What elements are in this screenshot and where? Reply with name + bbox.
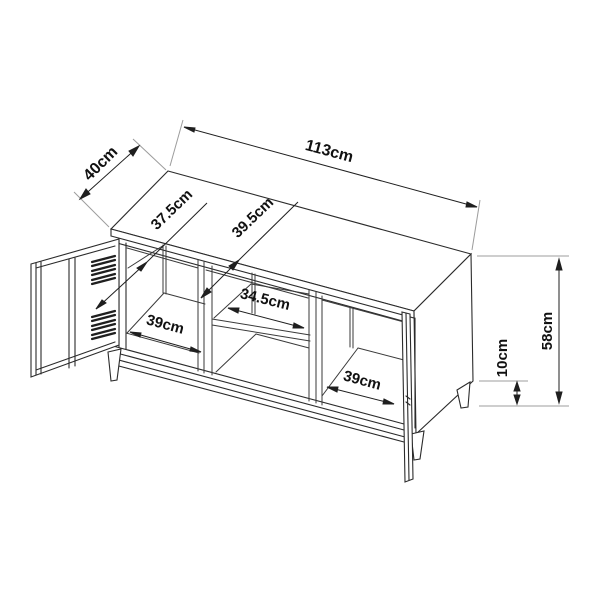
dimension-overall-height — [556, 259, 562, 403]
ext-40-back — [133, 139, 166, 170]
dimension-shelf-width — [228, 308, 304, 328]
arrowhead — [293, 323, 304, 328]
bottom-rail-2 — [113, 352, 404, 430]
label-overall-height: 58cm — [539, 312, 556, 350]
label-depth: 40cm — [80, 143, 121, 184]
left-door-open — [31, 239, 119, 377]
middle-floor-diagonal — [216, 334, 256, 372]
dimension-leg-height — [514, 382, 520, 404]
left-floor-back-edge — [164, 293, 205, 304]
front-left-leg — [108, 349, 121, 381]
arrowhead — [228, 308, 239, 313]
arrowhead — [514, 382, 520, 391]
dimension-right-compartment — [327, 387, 394, 404]
label-left-compartment: 39cm — [144, 311, 185, 337]
furniture-dimension-diagram: 113cm 40cm 37.5cm 39.5cm 34.5cm 39cm 39c… — [0, 0, 600, 600]
arrowhead — [184, 127, 195, 132]
dimension-left-compartment — [130, 332, 201, 352]
label-leg-height: 10cm — [494, 339, 511, 377]
ext-40-front — [74, 192, 109, 227]
ext-113-left — [170, 120, 183, 166]
arrowhead — [129, 146, 139, 156]
arrowhead — [327, 387, 338, 392]
arrowhead — [190, 347, 201, 352]
label-right-compartment: 39cm — [341, 367, 382, 393]
arrowhead — [556, 392, 562, 403]
arrowhead — [383, 399, 394, 404]
arrowhead — [556, 259, 562, 270]
arrowhead — [514, 395, 520, 404]
arrowhead — [466, 202, 477, 207]
technical-drawing-canvas: 113cm 40cm 37.5cm 39.5cm 34.5cm 39cm 39c… — [0, 0, 600, 600]
right-door-open — [402, 312, 413, 482]
arrowhead — [137, 262, 147, 271]
arrowhead — [80, 189, 90, 199]
right-floor-back-edge — [358, 348, 404, 360]
